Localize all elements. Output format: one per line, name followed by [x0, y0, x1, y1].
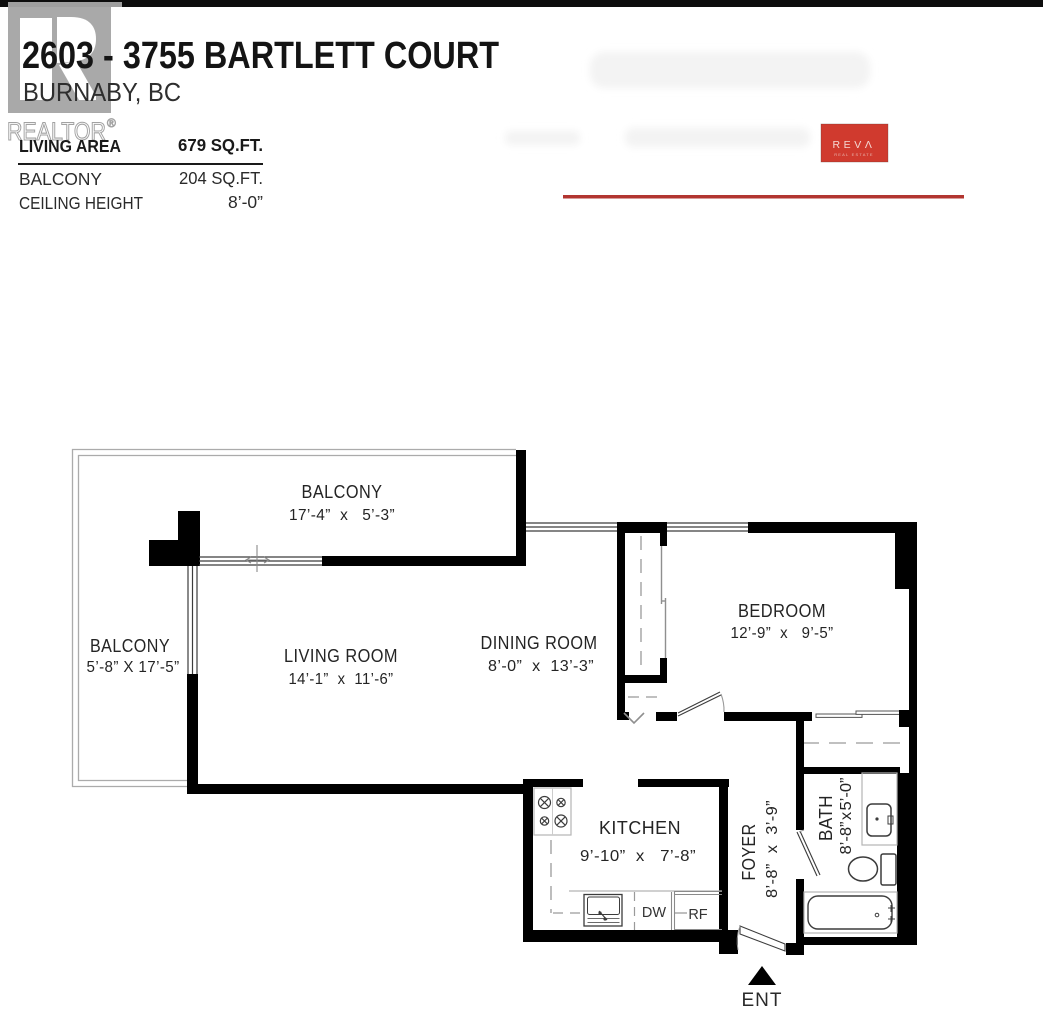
- svg-text:REAL ESTATE: REAL ESTATE: [834, 152, 874, 157]
- svg-text:®: ®: [107, 116, 116, 130]
- svg-text:BEDROOM: BEDROOM: [738, 601, 826, 621]
- svg-text:8’-0” x 13’-3”: 8’-0” x 13’-3”: [488, 658, 594, 675]
- svg-text:BALCONY: BALCONY: [302, 482, 383, 502]
- svg-text:DINING ROOM: DINING ROOM: [481, 633, 598, 653]
- svg-text:CEILING HEIGHT: CEILING HEIGHT: [19, 193, 143, 213]
- svg-text:14’-1” x 11’-6”: 14’-1” x 11’-6”: [289, 671, 394, 688]
- svg-text:12’-9” x 9’-5”: 12’-9” x 9’-5”: [731, 625, 834, 642]
- svg-text:204 SQ.FT.: 204 SQ.FT.: [179, 168, 263, 188]
- svg-text:RF: RF: [688, 907, 707, 923]
- svg-text:LIVING AREA: LIVING AREA: [19, 136, 121, 156]
- svg-text:BATH: BATH: [816, 795, 836, 841]
- svg-text:17’-4” x 5’-3”: 17’-4” x 5’-3”: [289, 507, 395, 524]
- svg-text:9’-10” x 7’-8”: 9’-10” x 7’-8”: [580, 848, 696, 865]
- svg-text:2603 - 3755 BARTLETT COURT: 2603 - 3755 BARTLETT COURT: [22, 35, 499, 77]
- svg-text:5’-8” X 17’-5”: 5’-8” X 17’-5”: [87, 659, 180, 676]
- svg-text:BURNABY, BC: BURNABY, BC: [23, 77, 181, 107]
- svg-text:FOYER: FOYER: [739, 824, 759, 881]
- svg-text:KITCHEN: KITCHEN: [599, 818, 681, 838]
- svg-text:REVΛ: REVΛ: [832, 139, 875, 151]
- svg-text:679 SQ.FT.: 679 SQ.FT.: [178, 135, 263, 155]
- svg-text:8’-8” x 5’-0”: 8’-8” x 5’-0”: [838, 778, 855, 855]
- svg-text:ENT: ENT: [742, 990, 783, 1011]
- svg-text:BALCONY: BALCONY: [19, 169, 102, 189]
- svg-text:BALCONY: BALCONY: [90, 636, 170, 656]
- svg-text:8’-8” x 3’-9”: 8’-8” x 3’-9”: [764, 800, 781, 898]
- svg-text:DW: DW: [642, 905, 666, 921]
- svg-text:LIVING ROOM: LIVING ROOM: [284, 646, 398, 666]
- svg-text:8’-0”: 8’-0”: [228, 192, 263, 212]
